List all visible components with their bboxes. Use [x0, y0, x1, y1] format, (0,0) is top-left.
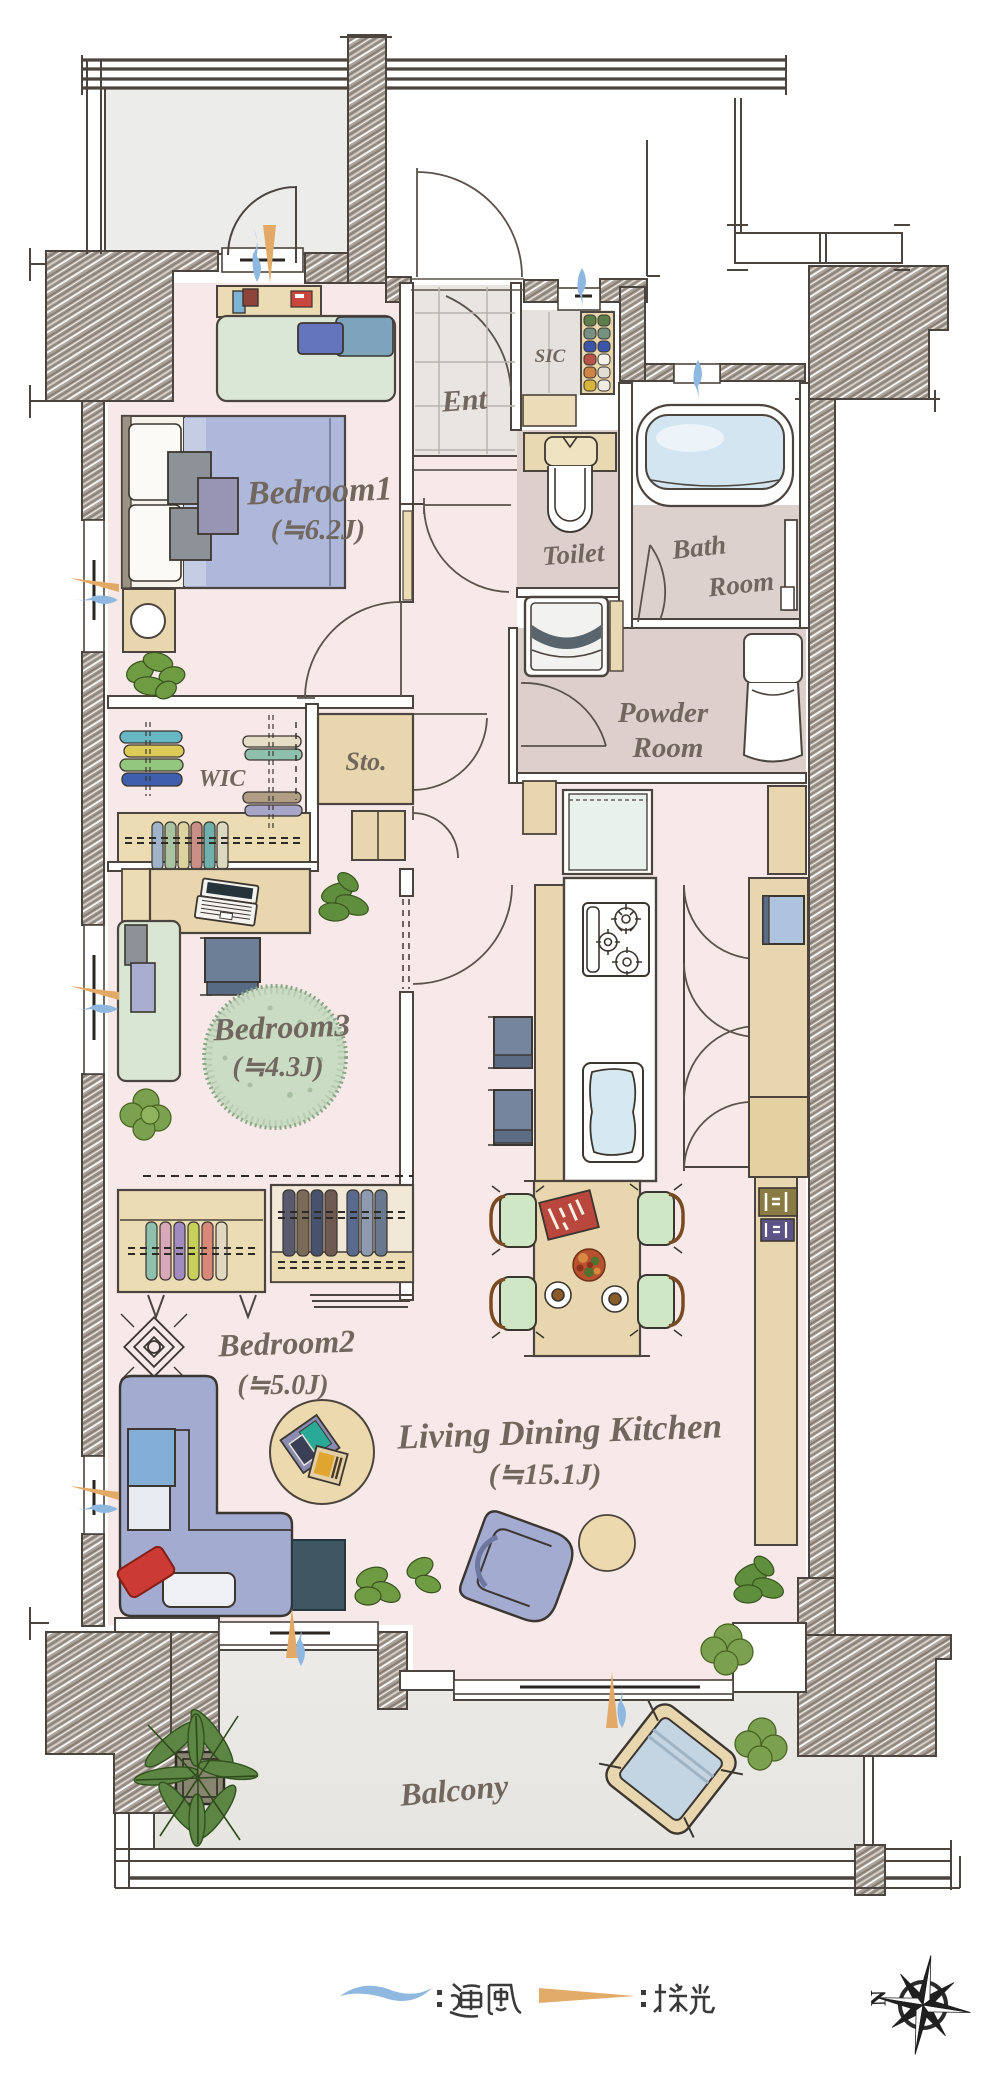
svg-text:N: N — [865, 1990, 890, 2006]
svg-text:(≒6.2J): (≒6.2J) — [271, 514, 365, 546]
svg-text:Bath: Bath — [670, 529, 728, 565]
svg-text:Bedroom2: Bedroom2 — [217, 1323, 356, 1364]
svg-text:Powder: Powder — [617, 697, 709, 729]
svg-text:(≒4.3J): (≒4.3J) — [232, 1052, 323, 1083]
svg-text:Sto.: Sto. — [345, 747, 386, 776]
svg-text:Ent: Ent — [440, 382, 490, 418]
svg-text:Toilet: Toilet — [541, 537, 606, 571]
svg-text:(≒15.1J): (≒15.1J) — [489, 1458, 602, 1491]
svg-text:SIC: SIC — [535, 346, 566, 367]
svg-text:(≒5.0J): (≒5.0J) — [237, 1370, 328, 1401]
svg-text:WIC: WIC — [199, 766, 247, 792]
svg-text:Bedroom3: Bedroom3 — [212, 1007, 351, 1048]
svg-text:Bedroom1: Bedroom1 — [245, 470, 393, 512]
svg-text:Room: Room — [632, 732, 704, 764]
